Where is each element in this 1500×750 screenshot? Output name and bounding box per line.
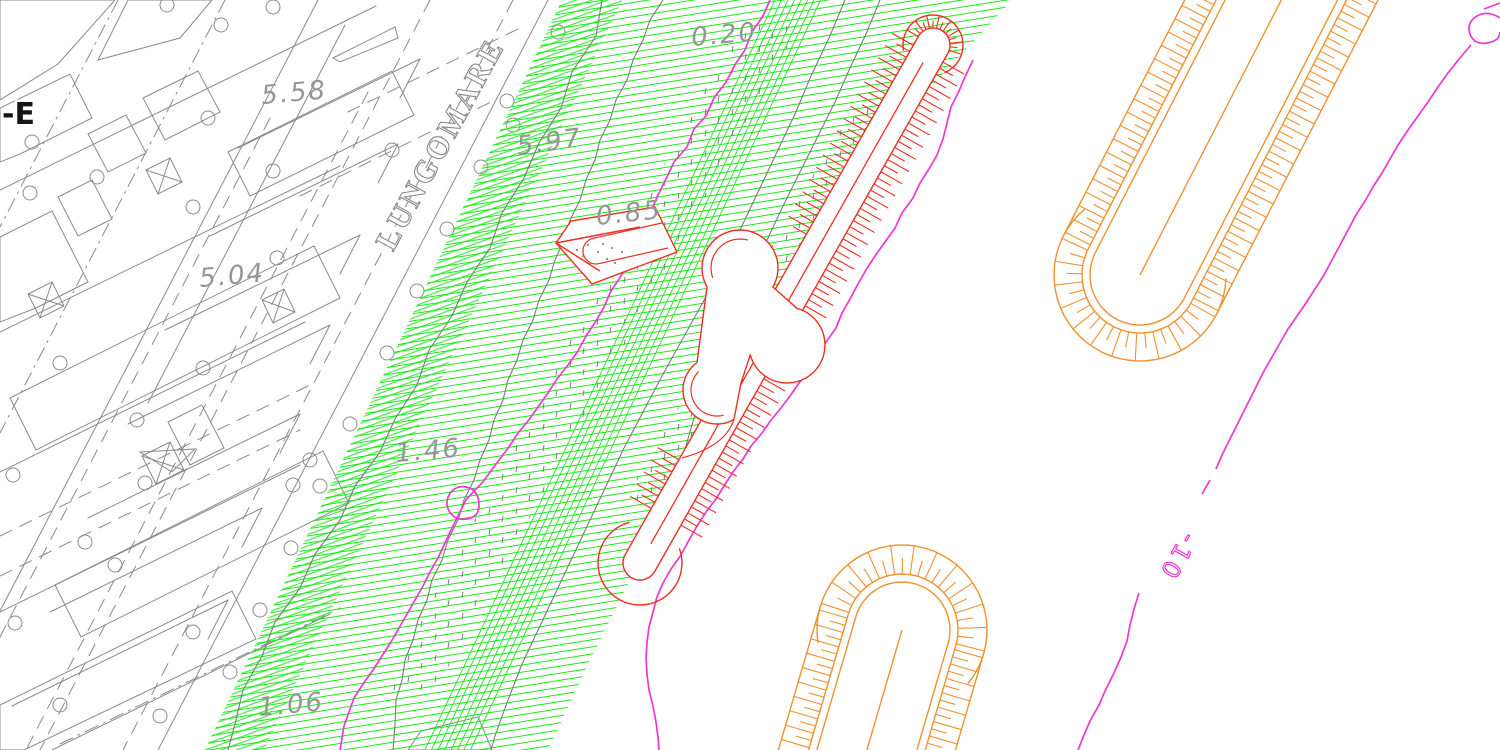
orange-breakwater-north — [1054, 0, 1413, 361]
crossed-box — [142, 442, 184, 484]
building-hatched — [88, 115, 146, 172]
spot-height-label: 5.04 — [198, 258, 266, 294]
spot-height-label: 1.06 — [257, 687, 325, 723]
building-hatched — [98, 0, 212, 60]
minus10-contour-corner — [1469, 3, 1500, 43]
building-hatched — [0, 0, 115, 100]
orange-breakwater-south — [770, 545, 987, 750]
spot-height-label: 5.58 — [260, 75, 328, 111]
spot-height-label: 0.20 — [690, 17, 758, 53]
crossed-box — [28, 282, 64, 318]
spot-height-label: 1.46 — [394, 433, 462, 469]
building-hatched — [168, 405, 224, 465]
building-hatched — [143, 71, 220, 140]
section-mark-label: -E — [2, 97, 35, 132]
coastal-site-plan: -10 5.58 5.04 5.97 0.85 0.20 1.46 1.06 L… — [0, 0, 1500, 750]
crossed-box — [146, 158, 182, 194]
building-row — [10, 246, 340, 450]
building-hatched — [58, 180, 112, 236]
depth-contour-label: -10 — [1153, 528, 1203, 586]
